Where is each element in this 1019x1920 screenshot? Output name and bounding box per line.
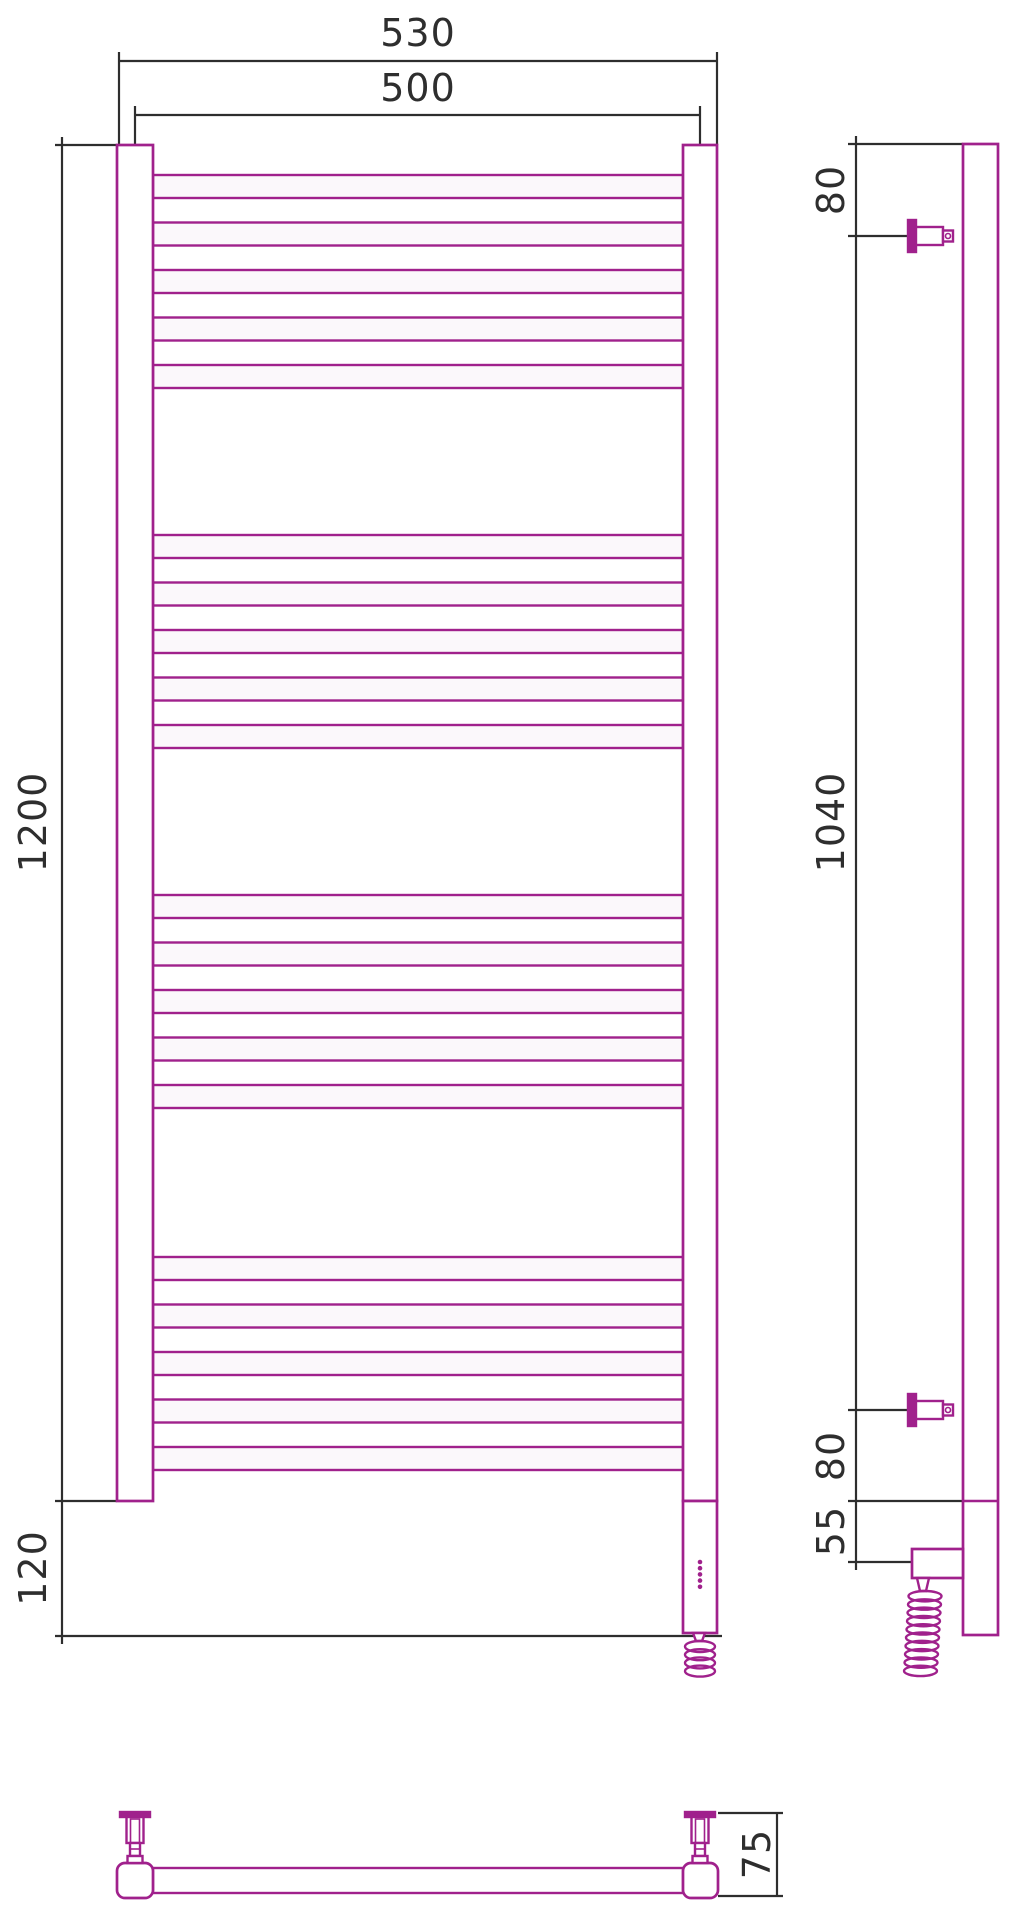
crossbar-tube xyxy=(153,270,683,293)
wall-bracket-base xyxy=(693,1856,708,1863)
indicator-dot xyxy=(698,1566,703,1571)
right-post xyxy=(683,145,717,1501)
wall-bracket-barrel xyxy=(127,1817,144,1843)
wall-bracket-barrel xyxy=(916,227,943,245)
dim-label-bracket_spacing: 1040 xyxy=(809,772,853,873)
dim-label-heater_offset: 55 xyxy=(809,1506,853,1556)
crossbar-tube xyxy=(153,365,683,388)
crossbar-tube xyxy=(153,175,683,198)
crossbar-tube xyxy=(153,990,683,1013)
indicator-dot xyxy=(698,1585,703,1590)
side-heater-box xyxy=(912,1549,963,1578)
dim-label-heater_section_height: 120 xyxy=(11,1530,55,1606)
crossbar-tube xyxy=(153,630,683,653)
drawing-canvas: 5305001200120801040805575 xyxy=(0,0,1019,1920)
crossbar-tube xyxy=(153,1400,683,1423)
post-section xyxy=(683,1863,718,1898)
wall-bracket-barrel xyxy=(916,1401,943,1419)
crossbar-tube xyxy=(153,1305,683,1328)
wall-bracket-neck xyxy=(943,1405,953,1416)
side-post-bar xyxy=(963,144,998,1635)
drawing-page: 5305001200120801040805575 xyxy=(0,0,1019,1920)
dim-label-wall_depth: 75 xyxy=(735,1829,779,1879)
bottom-view xyxy=(117,1812,718,1898)
dim-label-bottom_bracket_offset: 80 xyxy=(809,1431,853,1481)
indicator-dot xyxy=(698,1560,703,1565)
crossbar-tube xyxy=(153,943,683,966)
dim-label-top_bracket_offset: 80 xyxy=(809,165,853,215)
wall-bracket-barrel xyxy=(692,1817,709,1843)
wall-bracket-flange xyxy=(908,220,916,252)
wall-bracket-neck xyxy=(943,231,953,242)
dim-label-overall_width: 530 xyxy=(380,11,456,55)
crossbar-tube xyxy=(153,318,683,341)
crossbar-tube xyxy=(153,725,683,748)
crossbar-tube xyxy=(153,1352,683,1375)
wall-bracket-base xyxy=(128,1856,143,1863)
crossbar-tube xyxy=(153,583,683,606)
wall-bracket-flange xyxy=(908,1394,916,1426)
crossbar-tube xyxy=(153,895,683,918)
dim-label-rail_width: 500 xyxy=(380,66,456,110)
side-view xyxy=(904,144,998,1676)
indicator-dot xyxy=(698,1578,703,1583)
dim-label-overall_height: 1200 xyxy=(11,772,55,873)
crossbar-tube xyxy=(153,223,683,246)
crossbar-tube xyxy=(153,678,683,701)
crossbar-tube xyxy=(153,535,683,558)
crossbar-tube xyxy=(153,1257,683,1280)
crossbar-tube xyxy=(153,1085,683,1108)
cable-connector xyxy=(693,1633,705,1641)
front-view xyxy=(117,145,717,1677)
crossbar-tube xyxy=(153,1038,683,1061)
indicator-dot xyxy=(698,1572,703,1577)
crossbar-tube xyxy=(153,1447,683,1470)
post-section xyxy=(117,1863,153,1898)
left-post xyxy=(117,145,153,1501)
cable-connector xyxy=(917,1578,929,1591)
bottom-tube xyxy=(153,1868,683,1893)
